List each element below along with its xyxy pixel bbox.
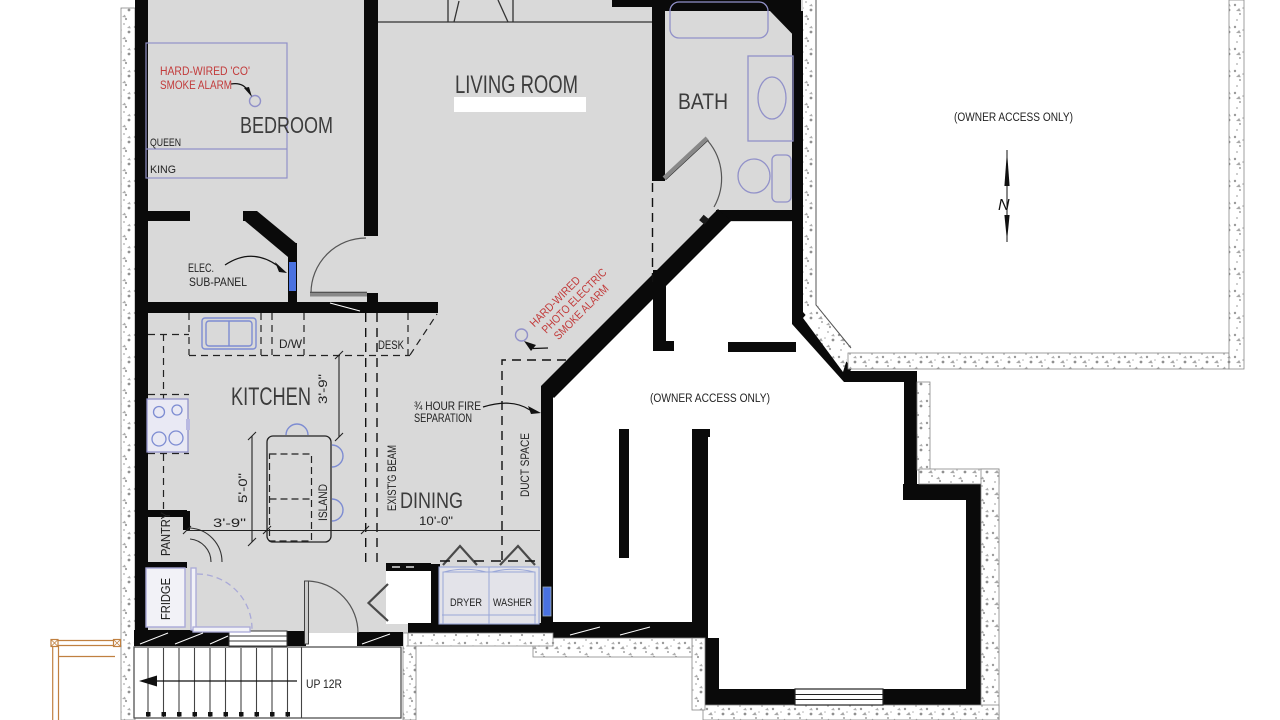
svg-text:ISLAND: ISLAND — [316, 484, 330, 521]
svg-text:(OWNER ACCESS ONLY): (OWNER ACCESS ONLY) — [650, 393, 770, 405]
svg-text:DRYER: DRYER — [450, 597, 482, 609]
svg-text:D/W: D/W — [279, 337, 303, 351]
svg-text:FRIDGE: FRIDGE — [159, 578, 173, 620]
svg-text:QUEEN: QUEEN — [150, 137, 181, 149]
svg-text:SUB-PANEL: SUB-PANEL — [189, 275, 247, 289]
svg-text:KITCHEN: KITCHEN — [231, 383, 311, 411]
svg-text:5'-0": 5'-0" — [236, 473, 250, 503]
svg-text:KING: KING — [150, 164, 176, 176]
svg-text:10'-0": 10'-0" — [419, 514, 453, 528]
svg-text:3'-9": 3'-9" — [213, 516, 246, 530]
svg-text:EXIST'G BEAM: EXIST'G BEAM — [387, 445, 399, 511]
svg-text:LIVING ROOM: LIVING ROOM — [455, 71, 578, 99]
svg-text:SMOKE ALARM: SMOKE ALARM — [160, 80, 232, 92]
svg-text:BEDROOM: BEDROOM — [240, 112, 333, 138]
svg-text:SEPARATION: SEPARATION — [414, 411, 472, 425]
svg-text:3'-9": 3'-9" — [316, 374, 330, 404]
svg-text:DUCT SPACE: DUCT SPACE — [520, 433, 532, 497]
svg-text:DINING: DINING — [400, 488, 463, 513]
svg-text:(OWNER ACCESS ONLY): (OWNER ACCESS ONLY) — [954, 112, 1073, 124]
svg-text:ELEC.: ELEC. — [188, 261, 214, 275]
svg-text:HARD-WIRED 'CO': HARD-WIRED 'CO' — [160, 66, 250, 78]
svg-text:BATH: BATH — [678, 89, 728, 114]
svg-text:DESK: DESK — [378, 338, 404, 352]
svg-text:UP 12R: UP 12R — [306, 677, 342, 691]
svg-text:N: N — [998, 197, 1010, 214]
svg-text:PANTRY: PANTRY — [159, 511, 173, 556]
svg-text:WASHER: WASHER — [493, 597, 532, 609]
